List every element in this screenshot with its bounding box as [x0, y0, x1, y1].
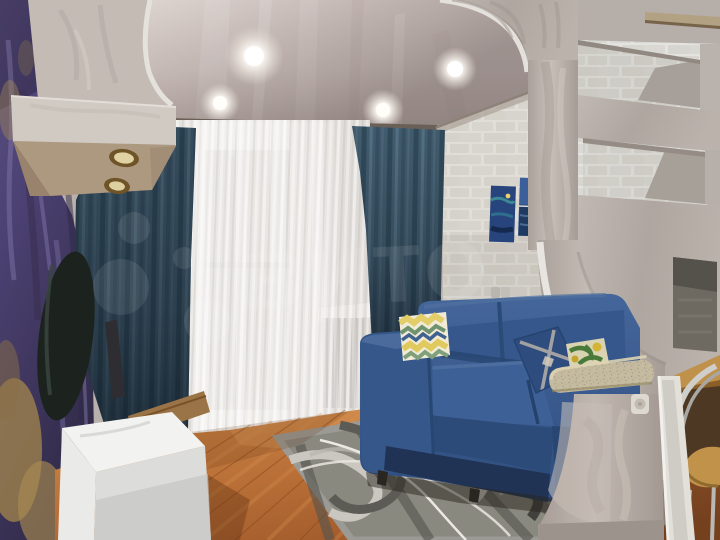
svg-text:вито: вито [235, 203, 492, 333]
